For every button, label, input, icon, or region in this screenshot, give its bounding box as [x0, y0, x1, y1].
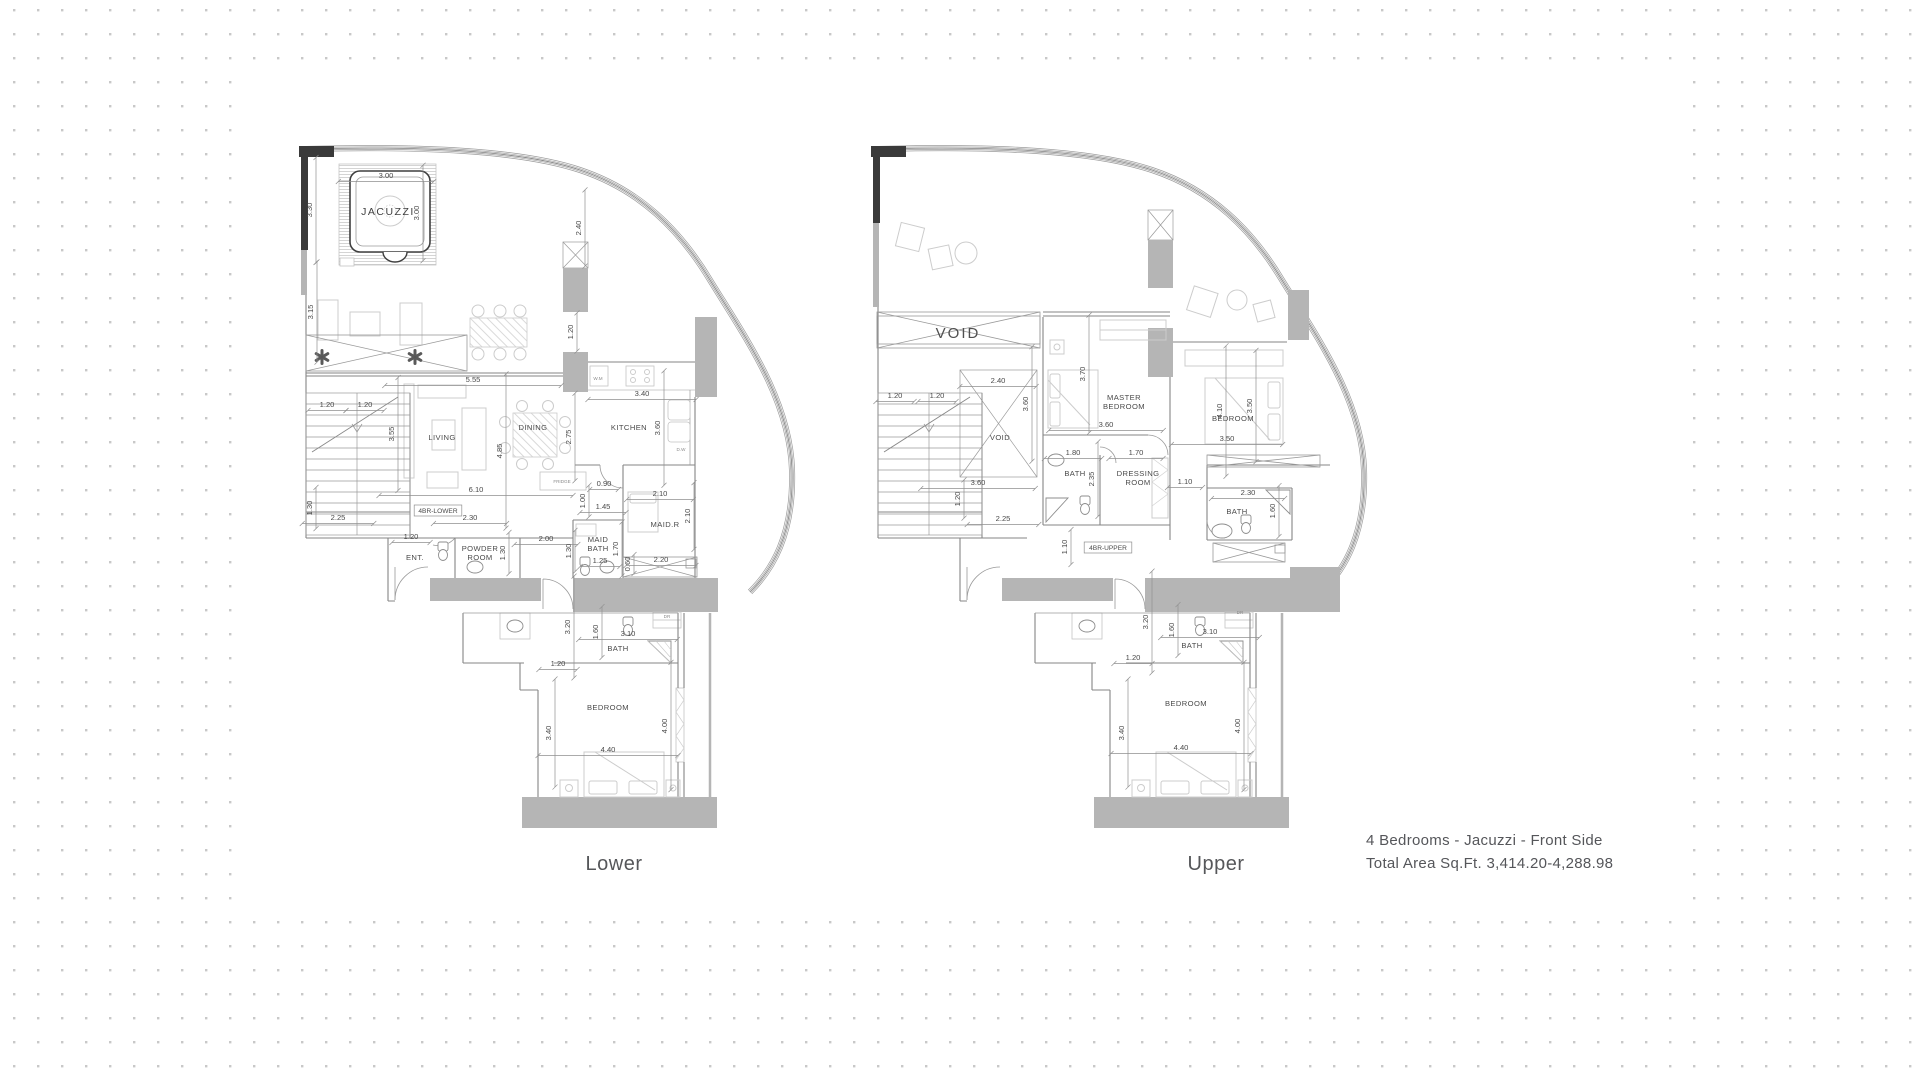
plan-label: D.W	[677, 447, 687, 452]
dimension-label: 3.60	[971, 478, 986, 487]
plan-label: DR	[664, 614, 671, 619]
dimension-label: 1.20	[551, 659, 566, 668]
dimension-label: 4.40	[1174, 743, 1189, 752]
dimension-label: 3.10	[621, 629, 636, 638]
room-dining: DINING	[519, 423, 548, 432]
floor-label-lower: Lower	[586, 853, 643, 876]
dimension-label: 1.70	[1129, 448, 1144, 457]
room-bedroom3: BEDROOM	[1165, 699, 1207, 708]
room-maid: MAID.R	[651, 520, 680, 529]
dimension-label: 2.10	[683, 509, 692, 524]
room-bedroom2: BEDROOM	[1212, 414, 1254, 423]
floor-label-upper: Upper	[1188, 853, 1245, 876]
room-kitchen: KITCHEN	[611, 423, 647, 432]
dimension-label: 4.00	[660, 719, 669, 734]
unit-tag: 4BR-UPPER	[1089, 545, 1127, 552]
room-entrance: ENT.	[406, 553, 424, 562]
void-terrace: VOID	[936, 325, 981, 342]
plan-label: DR	[1237, 610, 1244, 615]
dimension-label: 3.15	[306, 305, 315, 320]
dimension-label: 3.30	[305, 203, 314, 218]
dimension-label: 3.00	[379, 171, 394, 180]
dimension-label: 2.00	[539, 534, 554, 543]
dimension-label: 3.40	[1117, 726, 1126, 741]
dimension-label: 2.40	[574, 221, 583, 236]
dimension-label: 4.00	[1233, 719, 1242, 734]
dimension-label: 1.60	[1167, 623, 1176, 638]
room-jacuzzi: JACUZZI	[361, 206, 415, 218]
dimension-label: 0.90	[597, 479, 612, 488]
floorplan-page: JACUZZI3.003.003.303.152.401.205.551.201…	[0, 0, 1920, 1078]
dimension-label: 3.60	[1021, 397, 1030, 412]
dimension-label: 1.30	[305, 501, 314, 516]
dimension-label: 2.25	[996, 514, 1011, 523]
dimension-label: 2.25	[331, 513, 346, 522]
dimension-label: 3.50	[1245, 399, 1254, 414]
dimension-label: 3.60	[1099, 420, 1114, 429]
dimension-label: 3.60	[653, 421, 662, 436]
dimension-label: 1.20	[1126, 653, 1141, 662]
room-living: LIVING	[428, 433, 455, 442]
dimension-label: 3.55	[387, 427, 396, 442]
dimension-label: 1.20	[930, 391, 945, 400]
dimension-label: 1.20	[953, 492, 962, 507]
dimension-label: 3.00	[412, 206, 421, 221]
dimension-label: 3.20	[1141, 615, 1150, 630]
room-bath2: BATH	[1226, 507, 1247, 516]
room-bath3: BATH	[1181, 641, 1202, 650]
caption-line1: 4 Bedrooms - Jacuzzi - Front Side	[1366, 829, 1613, 852]
dimension-label: 2.20	[654, 555, 669, 564]
room-maid-bath: MAIDBATH	[587, 535, 608, 553]
room-bedroom: BEDROOM	[587, 703, 629, 712]
dimension-label: 2.75	[564, 430, 573, 445]
dimension-label: 5.55	[466, 375, 481, 384]
dimension-label: 1.10	[1060, 540, 1069, 555]
plan-caption: 4 Bedrooms - Jacuzzi - Front Side Total …	[1366, 829, 1613, 875]
dimension-label: 2.30	[1241, 488, 1256, 497]
dimension-label: 1.20	[320, 400, 335, 409]
dimension-label: 3.20	[563, 620, 572, 635]
dimension-label: 2.35	[1087, 472, 1096, 487]
dimension-label: 1.80	[1066, 448, 1081, 457]
caption-line2: Total Area Sq.Ft. 3,414.20-4,288.98	[1366, 852, 1613, 875]
dimension-label: 3.40	[544, 726, 553, 741]
dimension-label: 2.30	[463, 513, 478, 522]
plan-label: W.M	[593, 376, 602, 381]
unit-tag: 4BR-LOWER	[418, 508, 457, 515]
dimension-label: 2.10	[653, 489, 668, 498]
plan-label: FRIDGE	[553, 479, 570, 484]
floorplan-canvas: JACUZZI3.003.003.303.152.401.205.551.201…	[0, 0, 1920, 1078]
dimension-label: 1.60	[1268, 504, 1277, 519]
dimension-label: 6.10	[469, 485, 484, 494]
room-bath: BATH	[607, 644, 628, 653]
dimension-label: 1.20	[404, 532, 419, 541]
dimension-label: 1.00	[578, 494, 587, 509]
dimension-label: 4.85	[495, 444, 504, 459]
dimension-label: 1.20	[358, 400, 373, 409]
dimension-label: 1.30	[498, 546, 507, 561]
room-master-bath: BATH	[1064, 469, 1085, 478]
dimension-label: 3.10	[1203, 627, 1218, 636]
dimension-label: 1.20	[566, 325, 575, 340]
room-master-bedroom: MASTERBEDROOM	[1103, 393, 1145, 411]
dimension-label: 3.70	[1078, 367, 1087, 382]
dimension-label: 1.25	[593, 556, 608, 565]
dimension-label: 4.40	[601, 745, 616, 754]
dimension-label: 1.10	[1178, 477, 1193, 486]
dimension-label: 1.70	[611, 542, 620, 557]
dimension-label: 1.45	[596, 502, 611, 511]
dimension-label: 1.60	[591, 625, 600, 640]
dimension-label: 1.30	[564, 544, 573, 559]
dimension-label: 3.50	[1220, 434, 1235, 443]
dimension-label: 3.40	[635, 389, 650, 398]
void-stair: VOID	[990, 433, 1010, 442]
dimension-label: 2.40	[991, 376, 1006, 385]
dimension-label: 1.20	[888, 391, 903, 400]
